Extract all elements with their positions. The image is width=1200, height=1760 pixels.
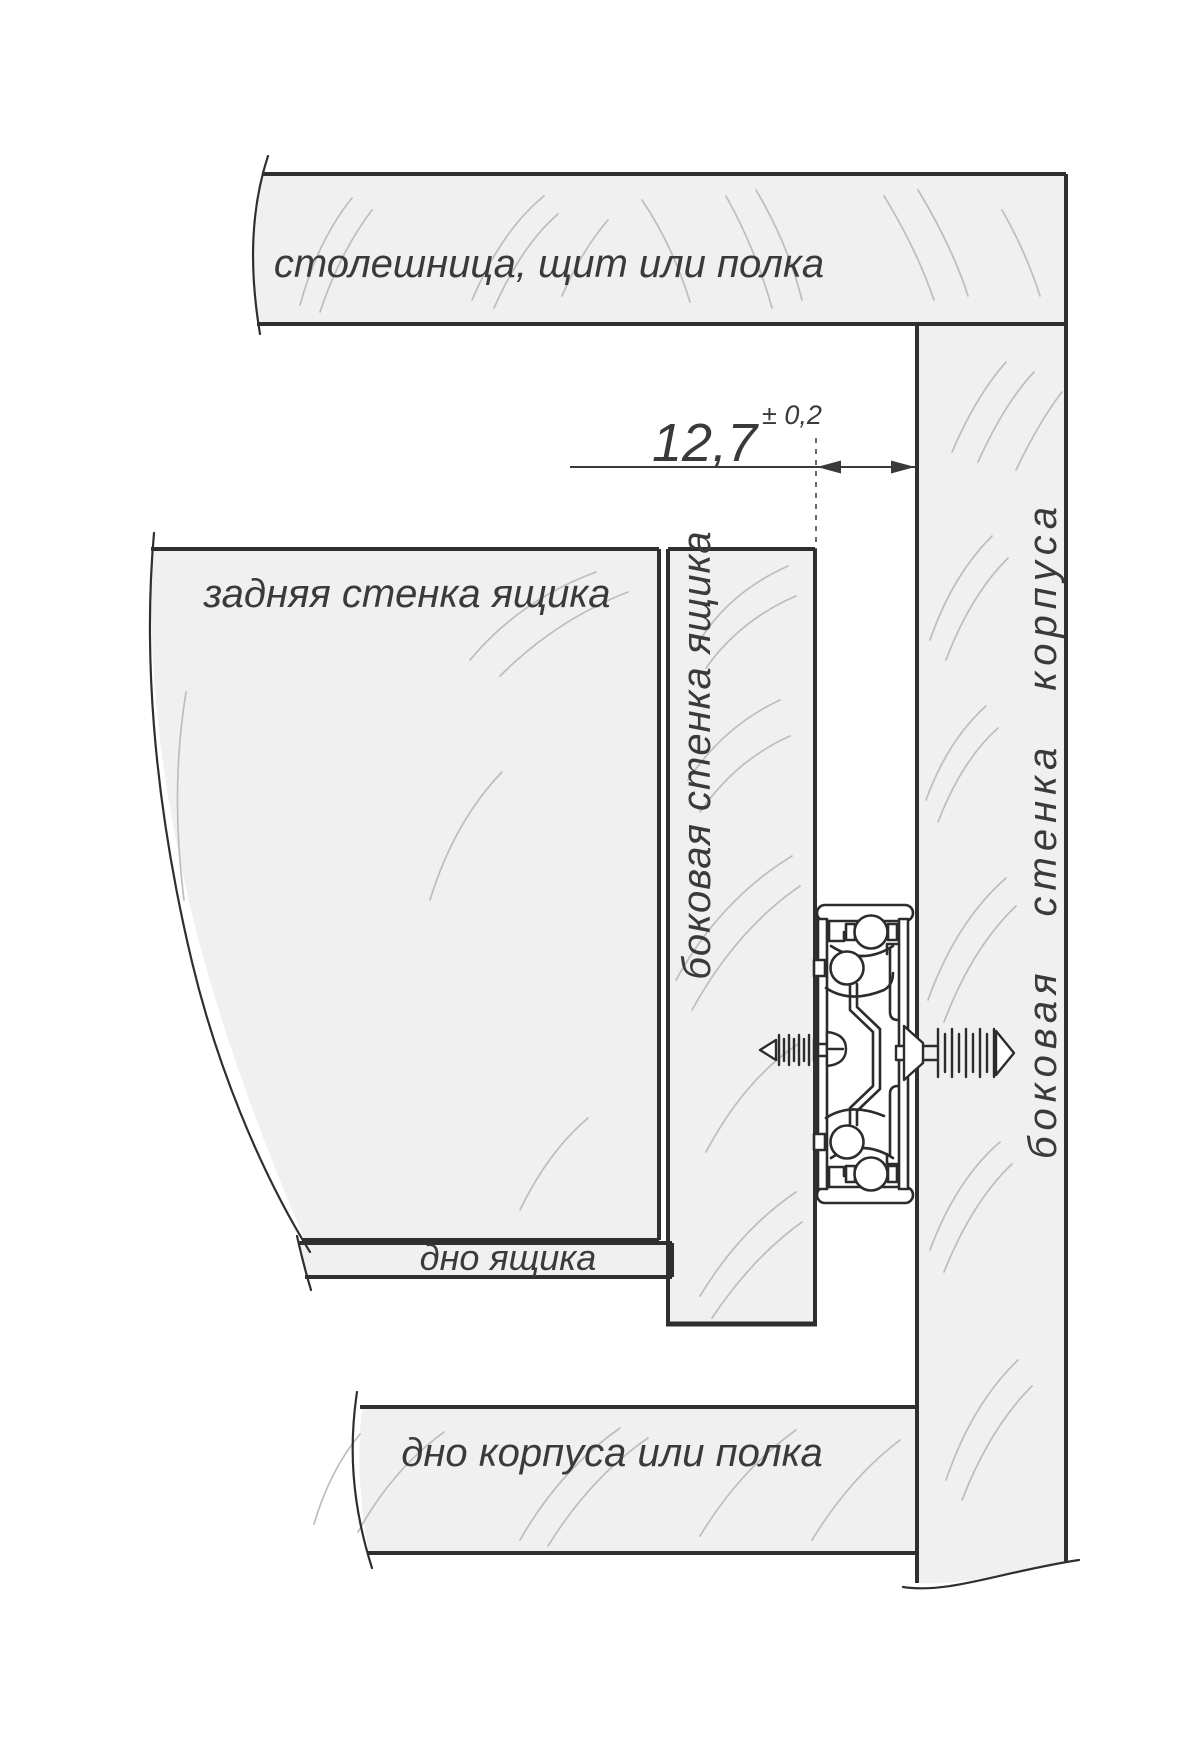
cabinet-bottom-label: дно корпуса или полка <box>401 1431 822 1475</box>
dimension-tolerance: ± 0,2 <box>762 400 822 430</box>
bearing-ball <box>831 952 864 985</box>
top-board-label: столешница, щит или полка <box>274 242 824 286</box>
diagram-canvas: 12,7 ± 0,2 <box>0 0 1200 1760</box>
bearing-ball <box>855 1158 888 1191</box>
dimension-arrow-right <box>891 461 915 474</box>
dimension-annotation: 12,7 ± 0,2 <box>570 400 915 549</box>
back-wall-panel <box>151 549 659 1240</box>
back-wall-label: задняя стенка ящика <box>203 572 611 616</box>
bearing-ball <box>855 916 888 949</box>
drawer-side-wall-label: боковая стенка ящика <box>675 530 719 979</box>
bearing-ball <box>831 1126 864 1159</box>
dimension-value: 12,7 <box>652 413 759 473</box>
cabinet-bottom-panel <box>359 1407 917 1553</box>
dimension-arrow-left <box>817 461 841 474</box>
drawer-bottom-label: дно ящика <box>420 1237 597 1278</box>
drawer-slide-mounting-diagram: 12,7 ± 0,2 <box>0 0 1200 1760</box>
cabinet-side-wall-label: боковая стенка корпуса <box>1021 501 1065 1159</box>
